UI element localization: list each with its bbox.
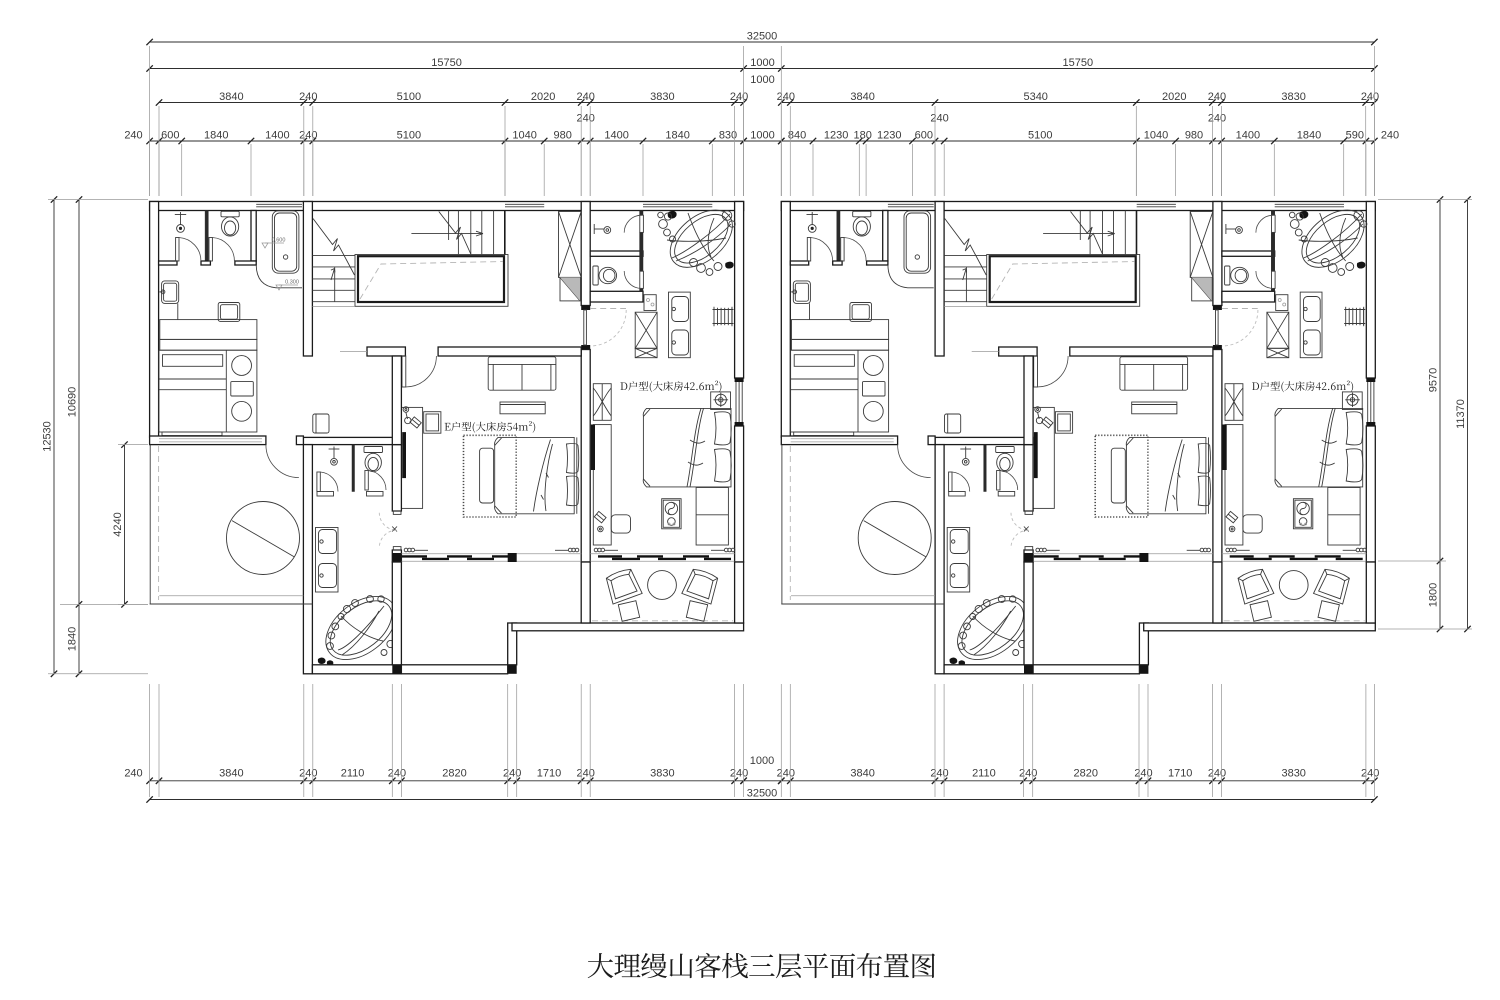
svg-text:12530: 12530 bbox=[42, 421, 54, 452]
svg-text:240: 240 bbox=[299, 768, 317, 780]
svg-text:240: 240 bbox=[124, 130, 142, 142]
svg-text:2820: 2820 bbox=[1074, 768, 1098, 780]
svg-text:590: 590 bbox=[1346, 130, 1364, 142]
svg-text:240: 240 bbox=[577, 768, 595, 780]
svg-text:1400: 1400 bbox=[265, 130, 289, 142]
svg-text:3830: 3830 bbox=[650, 768, 674, 780]
svg-text:240: 240 bbox=[1134, 768, 1152, 780]
svg-text:240: 240 bbox=[124, 768, 142, 780]
svg-text:980: 980 bbox=[1185, 130, 1203, 142]
svg-text:240: 240 bbox=[577, 91, 595, 103]
svg-text:1400: 1400 bbox=[1236, 130, 1260, 142]
svg-text:1840: 1840 bbox=[204, 130, 228, 142]
svg-text:240: 240 bbox=[503, 768, 521, 780]
svg-text:240: 240 bbox=[299, 130, 317, 142]
svg-text:240: 240 bbox=[730, 91, 748, 103]
svg-text:32500: 32500 bbox=[747, 788, 778, 800]
svg-text:240: 240 bbox=[1208, 91, 1226, 103]
svg-text:3840: 3840 bbox=[219, 91, 243, 103]
svg-text:10690: 10690 bbox=[67, 387, 79, 418]
svg-text:1800: 1800 bbox=[1428, 583, 1440, 607]
svg-text:240: 240 bbox=[1361, 91, 1379, 103]
svg-text:240: 240 bbox=[388, 768, 406, 780]
svg-text:240: 240 bbox=[577, 113, 595, 125]
svg-text:9570: 9570 bbox=[1428, 368, 1440, 392]
svg-text:5100: 5100 bbox=[397, 91, 421, 103]
svg-text:5100: 5100 bbox=[397, 130, 421, 142]
svg-text:1400: 1400 bbox=[604, 130, 628, 142]
svg-text:240: 240 bbox=[1208, 768, 1226, 780]
svg-text:3840: 3840 bbox=[850, 768, 874, 780]
svg-text:980: 980 bbox=[554, 130, 572, 142]
svg-text:5100: 5100 bbox=[1028, 130, 1052, 142]
svg-text:11370: 11370 bbox=[1455, 399, 1467, 429]
svg-text:3830: 3830 bbox=[1281, 91, 1305, 103]
svg-text:3840: 3840 bbox=[219, 768, 243, 780]
svg-text:1230: 1230 bbox=[877, 130, 901, 142]
svg-text:32500: 32500 bbox=[747, 31, 778, 43]
svg-text:1000: 1000 bbox=[750, 57, 774, 69]
svg-text:1040: 1040 bbox=[512, 130, 536, 142]
svg-text:2020: 2020 bbox=[1162, 91, 1186, 103]
svg-text:1710: 1710 bbox=[1168, 768, 1192, 780]
svg-text:600: 600 bbox=[915, 130, 933, 142]
svg-text:1840: 1840 bbox=[665, 130, 689, 142]
svg-text:1000: 1000 bbox=[750, 74, 774, 86]
svg-text:4240: 4240 bbox=[112, 512, 124, 536]
svg-text:1000: 1000 bbox=[750, 130, 774, 142]
svg-text:3830: 3830 bbox=[650, 91, 674, 103]
svg-text:0.300: 0.300 bbox=[285, 280, 299, 286]
svg-text:240: 240 bbox=[930, 768, 948, 780]
svg-text:1040: 1040 bbox=[1144, 130, 1168, 142]
svg-text:15750: 15750 bbox=[1063, 57, 1094, 69]
svg-text:0.600: 0.600 bbox=[272, 238, 286, 244]
svg-text:1840: 1840 bbox=[67, 627, 79, 651]
svg-text:240: 240 bbox=[1019, 768, 1037, 780]
svg-text:240: 240 bbox=[1208, 113, 1226, 125]
svg-text:2110: 2110 bbox=[972, 768, 996, 780]
svg-text:240: 240 bbox=[1361, 768, 1379, 780]
svg-text:600: 600 bbox=[161, 130, 179, 142]
svg-text:240: 240 bbox=[1381, 130, 1399, 142]
svg-text:240: 240 bbox=[777, 91, 795, 103]
svg-text:240: 240 bbox=[930, 113, 948, 125]
svg-text:180: 180 bbox=[854, 130, 872, 142]
svg-text:240: 240 bbox=[299, 91, 317, 103]
svg-text:1000: 1000 bbox=[750, 755, 774, 767]
svg-text:5340: 5340 bbox=[1023, 91, 1047, 103]
svg-text:2020: 2020 bbox=[531, 91, 555, 103]
svg-text:2820: 2820 bbox=[442, 768, 466, 780]
svg-text:1840: 1840 bbox=[1297, 130, 1321, 142]
svg-text:240: 240 bbox=[777, 768, 795, 780]
svg-text:2110: 2110 bbox=[341, 768, 365, 780]
svg-text:1710: 1710 bbox=[537, 768, 561, 780]
svg-text:1230: 1230 bbox=[824, 130, 848, 142]
svg-text:15750: 15750 bbox=[431, 57, 462, 69]
svg-text:3830: 3830 bbox=[1281, 768, 1305, 780]
svg-text:240: 240 bbox=[730, 768, 748, 780]
svg-text:3840: 3840 bbox=[850, 91, 874, 103]
